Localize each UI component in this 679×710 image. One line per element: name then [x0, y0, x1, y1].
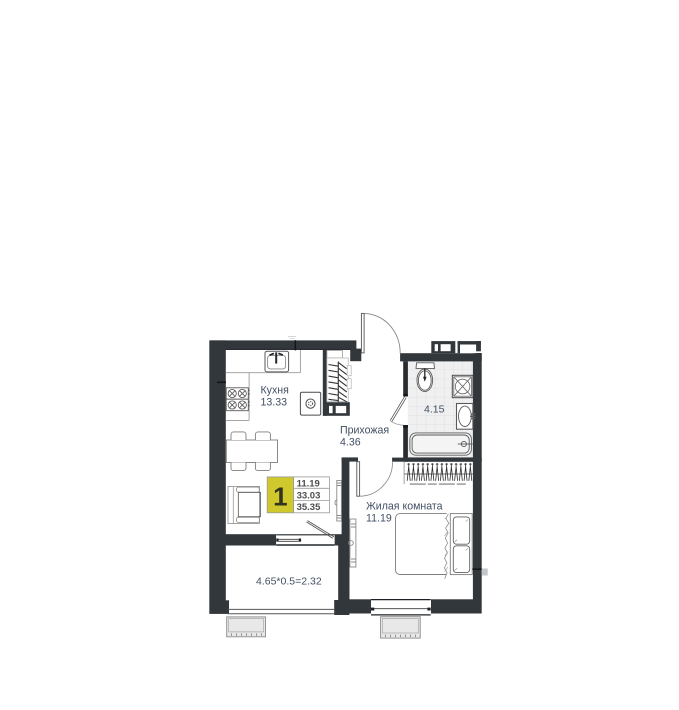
- svg-text:Жилая комната: Жилая комната: [366, 501, 443, 513]
- svg-text:4.65*0.5=2.32: 4.65*0.5=2.32: [256, 576, 322, 588]
- svg-text:1: 1: [273, 482, 287, 512]
- svg-text:33.03: 33.03: [297, 490, 321, 501]
- svg-text:Прихожая: Прихожая: [340, 425, 389, 437]
- svg-text:35.35: 35.35: [297, 502, 321, 513]
- svg-text:11.19: 11.19: [297, 479, 320, 490]
- svg-text:11.19: 11.19: [366, 513, 392, 525]
- svg-text:4.15: 4.15: [424, 404, 445, 416]
- svg-text:13.33: 13.33: [261, 397, 288, 409]
- svg-text:Кухня: Кухня: [261, 385, 289, 397]
- svg-text:4.36: 4.36: [340, 437, 361, 449]
